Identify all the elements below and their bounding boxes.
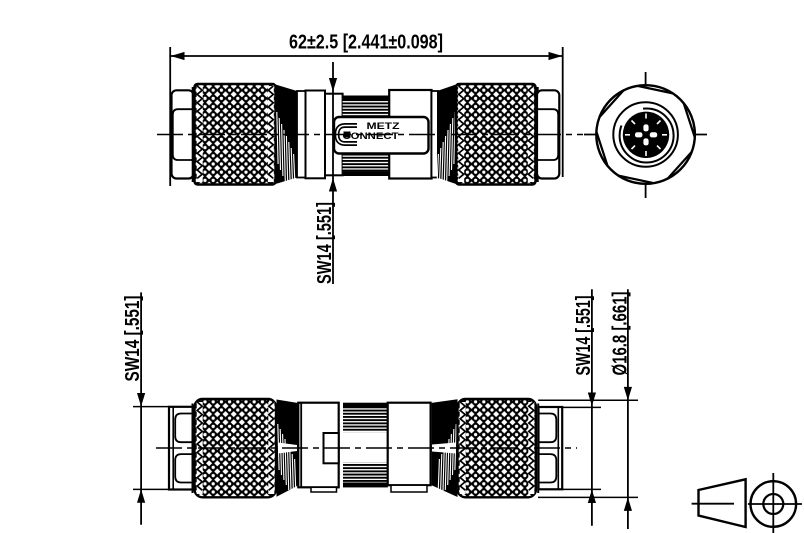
svg-text:CONNECT: CONNECT bbox=[343, 131, 399, 142]
svg-text:Ø16.8 [.661]: Ø16.8 [.661] bbox=[609, 292, 631, 376]
svg-text:SW14 [.551]: SW14 [.551] bbox=[314, 202, 336, 284]
svg-text:SW14 [.551]: SW14 [.551] bbox=[122, 296, 144, 382]
svg-text:SW14 [.551]: SW14 [.551] bbox=[573, 296, 595, 376]
svg-text:62±2.5 [2.441±0.098]: 62±2.5 [2.441±0.098] bbox=[289, 32, 443, 54]
svg-text:METZ: METZ bbox=[367, 121, 401, 131]
